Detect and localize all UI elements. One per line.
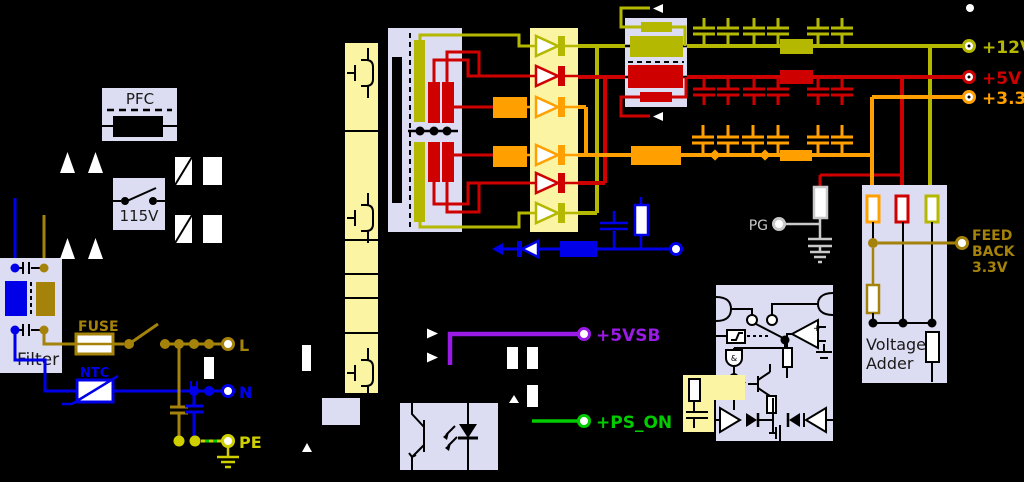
emi-filter: Filter: [0, 198, 62, 373]
winding-5v-small: [640, 92, 672, 102]
minus12-terminal: [671, 244, 682, 255]
v5sb-terminal: [579, 329, 590, 340]
magamp-inductor-2: [493, 146, 527, 167]
pfc-block: PFC: [102, 88, 177, 141]
voltage-adder-label-1: Voltage: [866, 335, 926, 354]
bleeder-resistor: [204, 357, 214, 379]
inductor-3v3-main: [631, 146, 681, 165]
pe-label: PE: [239, 433, 262, 452]
cap-bank-5v: [693, 77, 853, 105]
bridge-diode: [88, 152, 103, 173]
earth-ground-symbol: [217, 447, 239, 467]
bridge-diode: [60, 152, 75, 173]
primary-winding: [392, 57, 402, 203]
inductor-5v: [780, 70, 813, 84]
selector-label: 115V: [120, 207, 160, 225]
neutral-label: N: [239, 383, 252, 402]
resistor: [507, 347, 518, 369]
pfc-label: PFC: [126, 90, 154, 108]
svg-text:+: +: [813, 324, 821, 334]
v3v3-label: +3.3V: [982, 89, 1024, 109]
winding-12v: [630, 36, 683, 57]
pfc-inductor: [113, 116, 163, 137]
dot: [966, 4, 974, 12]
arrow-right-icon: [427, 353, 438, 363]
pe-terminal: [223, 436, 234, 447]
feedback-label-3: 3.3V: [972, 260, 1008, 276]
ps-on-label: +PS_ON: [596, 413, 672, 433]
diode-minus12: [522, 241, 538, 257]
secondary-winding-12v: [414, 40, 425, 122]
neutral-terminal: [223, 386, 234, 397]
secondary-winding-12v: [414, 142, 425, 222]
arrow-right-icon: [427, 329, 438, 339]
feedback-label-2: BACK: [972, 244, 1016, 260]
arrow-left-icon: [492, 243, 503, 255]
aux-box: [322, 398, 360, 425]
resistor: [302, 345, 311, 371]
bridge-rectifier: [60, 152, 103, 259]
schmitt-trigger: [727, 330, 745, 343]
svg-text:+: +: [834, 345, 842, 355]
secondary-winding-5v: [442, 82, 454, 123]
dc-output-terminals: +12V +5V +3.3V: [964, 4, 1024, 109]
line-terminal: [223, 339, 234, 350]
coupled-inductor: [621, 4, 687, 121]
adder-resistor-12v: [926, 196, 938, 222]
bridge-diode: [60, 238, 75, 259]
bleeder-resistor: [203, 215, 222, 243]
y-capacitor-n: [185, 391, 203, 441]
arrow-left-icon: [653, 4, 663, 13]
pwm-controller: & + +: [716, 285, 842, 443]
inductor-minus12: [560, 241, 597, 257]
v5sb-label: +5VSB: [596, 326, 660, 346]
bridge-diode: [88, 238, 103, 259]
inductor-3v3-post: [780, 150, 812, 161]
secondary-winding-5v: [428, 82, 440, 123]
voltage-selector: 115V: [113, 178, 165, 230]
inductor-12v: [780, 39, 813, 54]
winding-5v: [628, 65, 683, 88]
pg-label: PG: [749, 218, 768, 234]
pg-terminal: [774, 219, 785, 230]
power-good-network: PG: [749, 187, 832, 262]
optocoupler: [400, 403, 498, 470]
arrow-left-icon: [653, 112, 663, 121]
cap-bank-12v: [693, 18, 853, 46]
adder-resistor-3v3: [867, 196, 879, 222]
ntc-label: NTC: [80, 366, 109, 381]
atx-psu-schematic: Filter FUSE L NTC N PE: [0, 0, 1024, 482]
diode-box: [530, 28, 578, 232]
switching-transistors: [345, 43, 378, 393]
bleeder-resistor: [203, 157, 222, 185]
filter-winding-n: [5, 281, 27, 316]
rail-3v3: [578, 97, 963, 196]
cap-minus12: [600, 211, 628, 249]
arrow-up-icon: [509, 395, 519, 403]
ps-on-terminal: [579, 416, 590, 427]
rc-resistor: [689, 379, 700, 401]
power-switch-blade: [129, 324, 158, 344]
line-label: L: [239, 336, 249, 355]
optocoupler-box: [400, 403, 498, 470]
feedback-terminal: [957, 238, 968, 249]
secondary-winding-5v: [428, 142, 440, 182]
resistor: [527, 347, 538, 369]
adder-lower-resistor: [926, 332, 939, 362]
pg-ground-symbol: [810, 252, 830, 262]
feedback-resistor: [867, 285, 879, 313]
feedback-label-1: FEED: [972, 228, 1012, 244]
v12-label: +12V: [982, 38, 1024, 58]
secondary-winding-5v: [442, 142, 454, 182]
voltage-adder: Voltage Adder FEED BACK 3.3V: [862, 185, 1016, 383]
schematic-canvas: Filter FUSE L NTC N PE: [0, 0, 1024, 482]
rectifier-diodes: [530, 28, 578, 232]
filter-winding-l: [36, 282, 55, 316]
svg-text:&: &: [731, 354, 737, 363]
adder-resistor-5v: [896, 196, 908, 222]
fuse-label: FUSE: [78, 319, 119, 335]
v5-label: +5V: [982, 69, 1022, 89]
pg-resistor: [814, 187, 827, 218]
magamp-inductor-1: [493, 97, 527, 118]
bulk-capacitors: [175, 157, 222, 243]
winding-12v-small: [641, 22, 672, 32]
arrow-up-icon: [302, 443, 312, 452]
voltage-adder-label-2: Adder: [866, 354, 914, 373]
resistor-minus12: [635, 205, 648, 235]
resistor: [527, 385, 538, 407]
